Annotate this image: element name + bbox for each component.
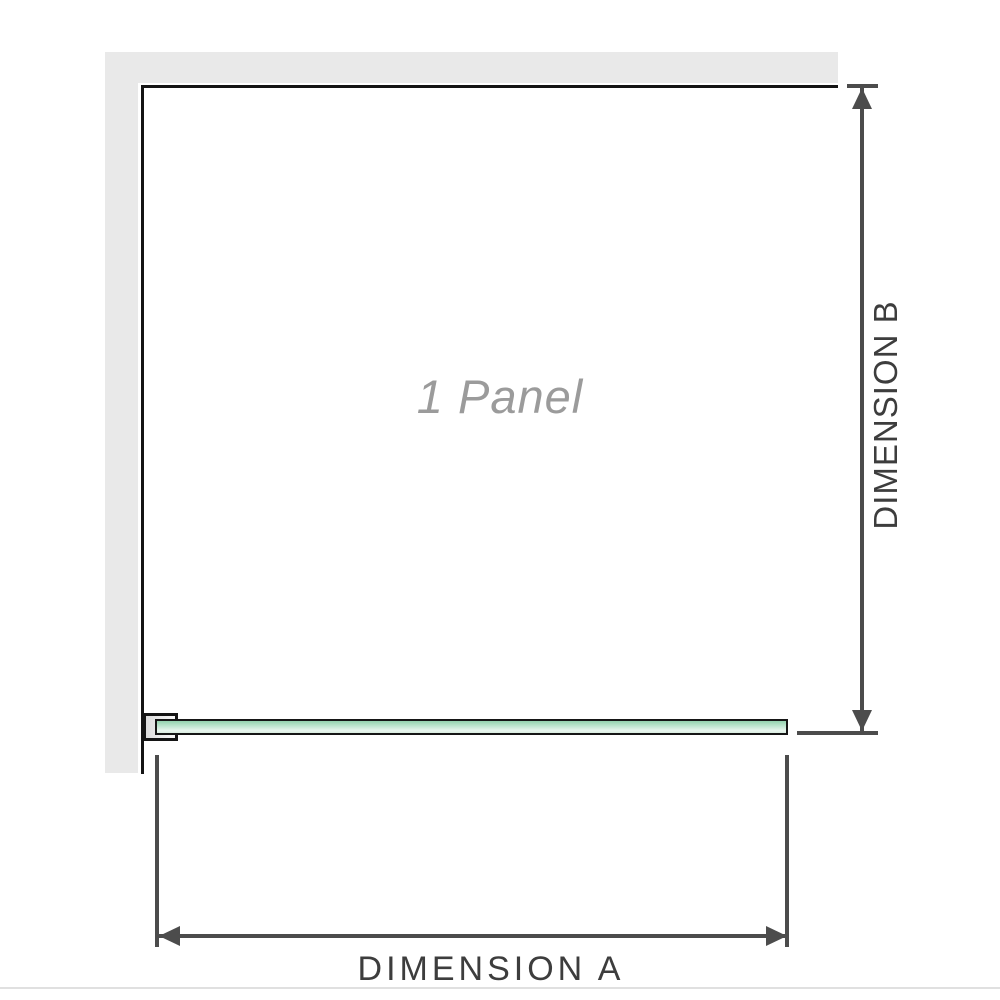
dimension-a-line: [157, 934, 787, 938]
dimension-b-label: DIMENSION B: [867, 265, 905, 565]
arrow-down-icon: [852, 710, 872, 731]
arrow-right-icon: [766, 926, 787, 946]
wall-left: [105, 52, 138, 773]
glass-panel: [155, 719, 788, 735]
dimension-b-tick-bottom: [797, 731, 878, 735]
panel-dimension-diagram: 1 Panel DIMENSION B DIMENSION A: [0, 0, 1000, 1000]
enclosure-top-edge: [141, 85, 838, 88]
bottom-divider: [0, 987, 1000, 989]
wall-top: [105, 52, 838, 83]
enclosure-left-edge: [141, 85, 144, 774]
dimension-a-extension-left: [155, 755, 159, 947]
dimension-a-extension-right: [785, 755, 789, 947]
arrow-left-icon: [159, 926, 180, 946]
dimension-b-line: [860, 88, 864, 731]
dimension-a-label: DIMENSION A: [291, 950, 691, 988]
arrow-up-icon: [852, 88, 872, 109]
panel-count-label: 1 Panel: [330, 370, 670, 424]
